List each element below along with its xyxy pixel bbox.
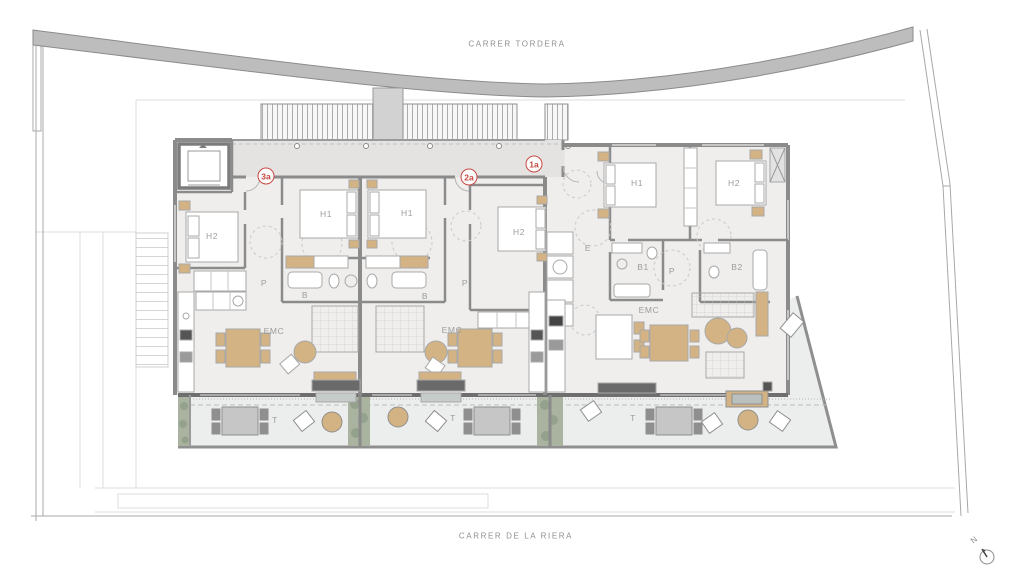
elevator-core — [179, 144, 229, 188]
north-arrow-icon — [980, 549, 994, 564]
street-band-top — [33, 27, 913, 97]
street-name-top: CARRER TORDERA — [468, 40, 565, 49]
floor-plan-canvas: CARRER TORDERA CARRER DE LA RIERA N H2H1… — [0, 0, 1024, 576]
street-name-bottom: CARRER DE LA RIERA — [459, 532, 573, 541]
floor-plan-drawing — [0, 0, 1024, 576]
side-stair — [136, 233, 168, 367]
